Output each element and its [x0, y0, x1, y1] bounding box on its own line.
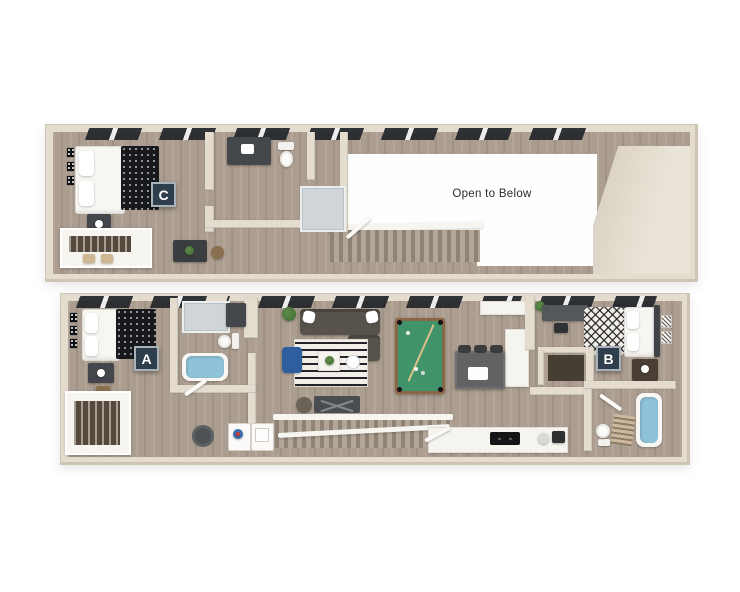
bath-b-tub-water [640, 397, 658, 443]
dryer-door-icon [255, 428, 269, 442]
bath-a-tub-water [186, 356, 224, 378]
kitchen-sink-icon [538, 433, 549, 444]
upper-wall-bath-bottom [205, 220, 303, 228]
closet-box-item [101, 254, 113, 263]
wall-bath-a-right-upper [244, 298, 258, 338]
coffee-maker-icon [552, 431, 565, 443]
wall-kitchen-bedroom-b [525, 296, 535, 350]
upper-floor-plan: Open to Below C [45, 124, 698, 282]
console-table [314, 396, 360, 413]
wall-art-icon [661, 315, 672, 328]
wall-art-icon [67, 176, 74, 185]
armchair-blue [282, 347, 302, 373]
pool-table [395, 318, 445, 394]
upper-wall-bedroom-bath-lower [205, 206, 214, 232]
bed-a-pillow-icon [85, 336, 98, 356]
bed-b-pillow-icon [627, 333, 639, 351]
bath-b-toilet-icon [596, 424, 610, 438]
wall-hall-a [248, 393, 256, 425]
open-to-below-label: Open to Below [417, 188, 567, 200]
pool-ball-icon [414, 367, 418, 371]
wall-bath-b-top [584, 381, 676, 389]
floorplan-figure: Open to Below C [0, 0, 740, 592]
shower-a [182, 301, 230, 333]
bed-b-headboard [654, 305, 660, 357]
closet-a-clothes-icon [74, 401, 120, 445]
wall-closet-b-left [538, 351, 544, 385]
bar-stool-icon [490, 345, 503, 353]
bar-stool-icon [458, 345, 471, 353]
unit-badge-a: A [134, 346, 159, 371]
upper-wall-bedroom-bath [205, 132, 214, 190]
pouf-icon [296, 397, 312, 413]
unit-badge-c: C [151, 182, 176, 207]
bed-c-pillow-icon [79, 181, 94, 206]
wall-art-icon [70, 339, 77, 348]
coffee-table-plant-icon [325, 356, 334, 365]
wall-hall-b [530, 387, 586, 395]
upper-toilet-icon [280, 151, 293, 167]
wall-closet-b-top [538, 347, 592, 353]
wall-art-icon [661, 331, 672, 344]
bedroom-b-desk [542, 305, 588, 321]
living-plant-icon [282, 307, 296, 321]
wall-bath-b-left [584, 389, 592, 451]
closet-box-item [83, 254, 95, 263]
towel-ladder-icon [610, 414, 636, 447]
pool-ball-icon [421, 371, 425, 375]
closet-b-clothes-icon [548, 355, 584, 381]
bedroom-c-lamp-icon [95, 220, 103, 228]
open-to-below-area-lower [477, 230, 600, 266]
bath-a-toilet-tank [232, 333, 239, 349]
bedroom-b-desk-chair [554, 323, 568, 333]
upper-windows-icon [85, 128, 589, 140]
upper-closet-clothes-icon [69, 236, 131, 252]
wall-art-icon [67, 148, 74, 157]
main-floor-plan: A [60, 293, 690, 465]
wall-art-icon [70, 326, 77, 335]
pool-ball-icon [406, 331, 410, 335]
wall-art-icon [70, 313, 77, 322]
cooktop-icon [490, 432, 520, 445]
upper-wall-bath-divider [307, 132, 315, 180]
washer-dot-icon [236, 432, 240, 436]
island-sink-icon [468, 367, 488, 380]
bath-b-toilet-tank [598, 439, 610, 446]
bar-stool-icon [474, 345, 487, 353]
wall-art-icon [67, 162, 74, 171]
wall-bath-a-bottom [170, 385, 256, 393]
bath-a-vanity [226, 303, 246, 327]
upper-bath-sink-icon [241, 144, 254, 154]
wall-bedroom-a-bath [170, 298, 178, 390]
bed-c-pillow-icon [79, 151, 94, 176]
bed-a-pillow-icon [85, 313, 98, 333]
kitchen-upper-cabinets [480, 301, 530, 315]
upper-shower [300, 186, 346, 232]
bath-a-toilet-icon [218, 335, 231, 348]
side-table [346, 355, 360, 369]
bedroom-b-lamp-icon [641, 365, 649, 373]
water-heater-icon [192, 425, 214, 447]
bedroom-a-lamp-icon [97, 369, 105, 377]
bed-b-pillow-icon [627, 311, 639, 329]
desk-plant-icon [185, 246, 194, 255]
upper-toilet-tank [278, 142, 294, 150]
unit-badge-b: B [596, 346, 621, 371]
upper-desk-chair [211, 246, 224, 259]
